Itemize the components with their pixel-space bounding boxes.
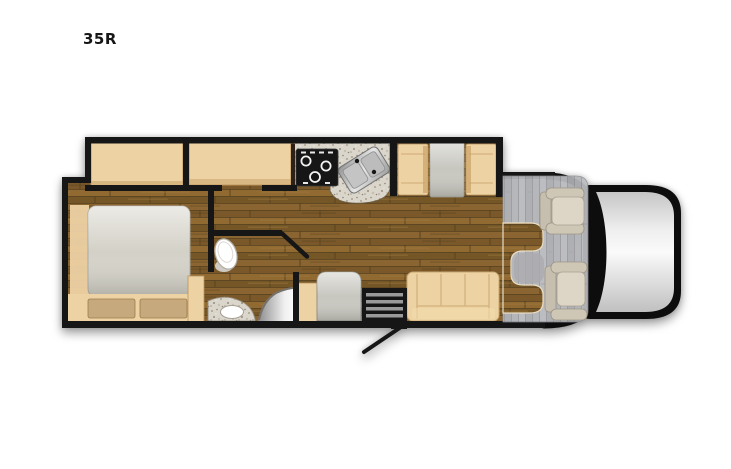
overhead-cabinet bbox=[189, 143, 291, 185]
bed-headboard bbox=[70, 205, 89, 297]
hood bbox=[596, 192, 674, 312]
foot-drawer-left bbox=[88, 299, 135, 318]
bed-shading bbox=[88, 206, 190, 297]
cooktop bbox=[296, 149, 338, 186]
wall-dinette-right bbox=[496, 137, 503, 197]
counter-side-panel bbox=[291, 144, 295, 186]
vanity-sink bbox=[221, 306, 244, 319]
faucet-dot-1 bbox=[355, 159, 359, 163]
wall-kitchen-dinette bbox=[390, 140, 397, 196]
wall-rear bbox=[62, 177, 68, 327]
wall-rear-notch-v bbox=[85, 137, 91, 183]
faucet-dot-2 bbox=[372, 170, 376, 174]
floorplan-page: 35R bbox=[0, 0, 731, 469]
wall-shower-right bbox=[293, 272, 299, 326]
wall-wardrobe-divider bbox=[183, 140, 189, 191]
dinette-table-shading bbox=[430, 140, 464, 197]
foot-drawer-right bbox=[140, 299, 187, 318]
cab-area bbox=[503, 176, 588, 322]
passenger-seat bbox=[540, 188, 584, 234]
dinette bbox=[398, 140, 496, 197]
passenger-seat-cushion bbox=[552, 197, 584, 225]
wall-bedroom-top bbox=[85, 185, 222, 191]
wall-bath-top bbox=[208, 230, 282, 236]
side-table-shading bbox=[317, 272, 361, 321]
bench-edge-l bbox=[423, 146, 428, 193]
nightstand bbox=[188, 276, 204, 322]
engine-console bbox=[514, 253, 544, 283]
floorplan-svg bbox=[0, 0, 731, 469]
wall-top bbox=[88, 137, 503, 144]
driver-seat-cushion bbox=[557, 272, 585, 306]
wall-hall-top bbox=[262, 185, 297, 191]
sofa-backrest bbox=[412, 308, 495, 319]
entry-door-swing bbox=[364, 325, 404, 352]
bench-edge-r bbox=[466, 146, 471, 193]
driver-seat bbox=[545, 262, 587, 320]
wall-bottom bbox=[62, 321, 545, 328]
overhead-cabinet-shadow bbox=[189, 179, 291, 185]
